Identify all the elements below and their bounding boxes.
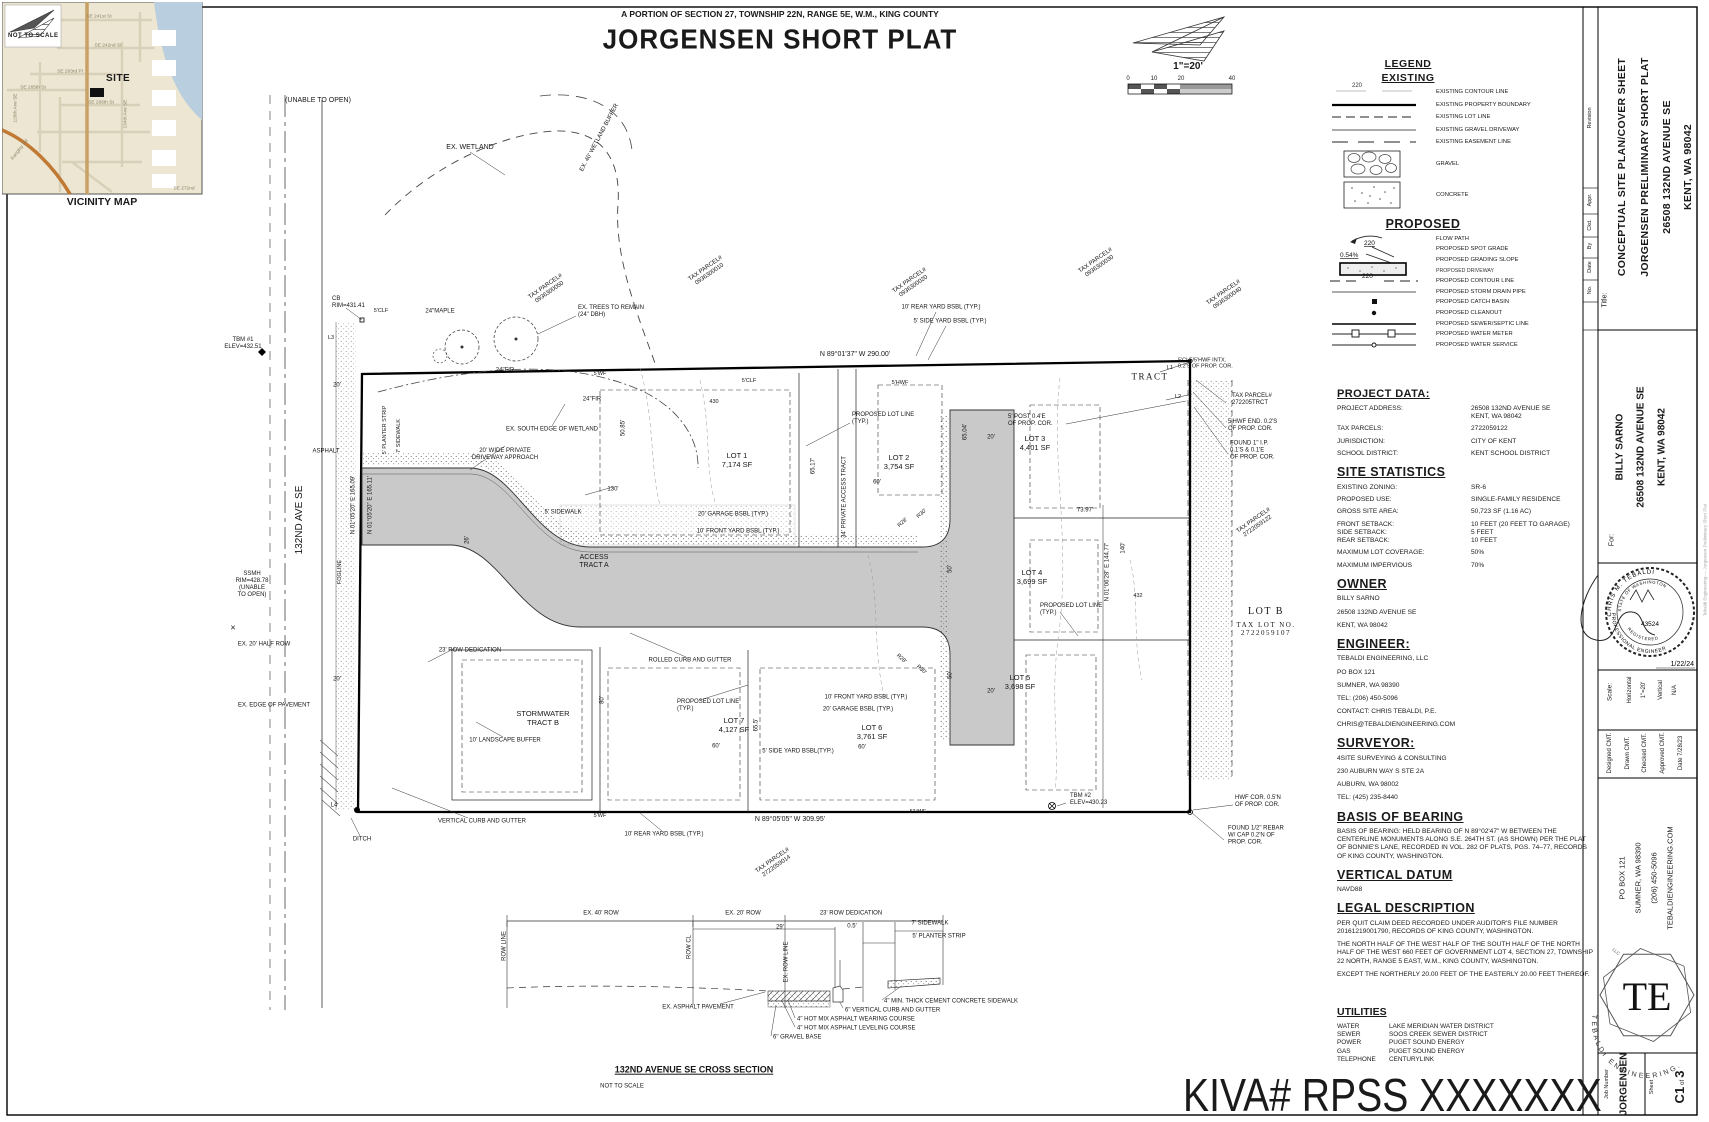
sheet-of: of [1680,1078,1686,1087]
vicinity-site-label: SITE [106,73,130,84]
plat-label: EX. 20' ROW [725,910,761,917]
panel-row: EXISTING ZONING:SR-6 [1337,484,1593,492]
panel-row-label: FRONT SETBACK: SIDE SETBACK: REAR SETBAC… [1337,521,1471,546]
scale-vertical-label: Vertical [1658,680,1664,700]
plat-label: 20' [333,676,341,683]
legend-row: CONCRETE [1318,180,1592,211]
legend-label: PROPOSED STORM DRAIN PIPE [1430,289,1526,295]
project-data-panel: PROJECT DATA:PROJECT ADDRESS:26508 132ND… [1337,381,1593,984]
plat-label: 5'CLF [374,308,389,314]
panel-row-label: GROSS SITE AREA: [1337,508,1471,516]
utility-value: PUGET SOUND ENERGY [1389,1048,1465,1056]
plat-label: 60' [712,743,720,750]
utility-label: POWER [1337,1039,1389,1047]
legend-label: FLOW PATH [1430,236,1469,242]
revision-column-label: Appr. [1587,194,1593,207]
scale-tick: 40 [1229,76,1236,82]
panel-row-label: PROPOSED USE: [1337,496,1471,504]
panel-row-value: 50% [1471,549,1593,557]
legend-label: CONCRETE [1430,192,1469,198]
panel-row-value: 10 FEET (20 FEET TO GARAGE) 5 FEET 10 FE… [1471,521,1593,546]
plat-label: 140' [1120,542,1127,553]
plat-label: EX. SOUTH EDGE OF WETLAND [506,426,598,433]
revision-column-label: Date [1587,261,1593,273]
svg-text:220: 220 [1352,83,1363,89]
plat-label: 24"FIR [496,367,514,374]
legend-label: PROPOSED CLEANOUT [1430,310,1502,316]
plat-label: 20' [987,434,995,441]
panel-row-label: MAXIMUM IMPERVIOUS [1337,562,1471,570]
vicinity-not-to-scale: NOT TO SCALE [8,33,59,39]
panel-row: SCHOOL DISTRICT:KENT SCHOOL DISTRICT [1337,450,1593,458]
legend-title: LEGEND [1342,58,1474,70]
plat-label: EX. ASPHALT PAVEMENT [662,1004,734,1011]
panel-row-label: MAXIMUM LOT COVERAGE: [1337,549,1471,557]
revision-column-label: No. [1587,286,1593,295]
plat-label: SSMH RIM=428.78 (UNABLE TO OPEN) [236,571,269,599]
plat-label: PROPOSED LOT LINE (TYP.) [677,699,739,713]
utility-label: WATER [1337,1023,1389,1031]
panel-row: MAXIMUM LOT COVERAGE:50% [1337,549,1593,557]
plat-label: N 01°05'20" E 165.11' [367,476,374,534]
vicinity-street-label: SE 241st St [86,15,111,20]
kiva-number: KIVA# RPSS XXXXXXX [1183,1068,1602,1122]
plat-label: 10' FRONT YARD BSBL (TYP.) [825,694,908,701]
panel-row-value: 2722059122 [1471,425,1593,433]
plat-label: 4" MIN. THICK CEMENT CONCRETE SIDEWALK [884,998,1018,1005]
plat-label: 23' ROW DEDICATION [439,647,501,654]
plat-label: HWF COR. 0.5'N OF PROP. COR. [1235,795,1281,809]
plat-label: 10' LANDSCAPE BUFFER [469,737,541,744]
legend-label: PROPOSED SEWER/SEPTIC LINE [1430,321,1529,327]
titleblock-for-line: KENT, WA 98042 [1657,408,1668,486]
legend-row: GRAVEL [1318,149,1592,180]
plat-label: CB RIM=431.41 [332,296,365,310]
titleblock-title-line: 26508 132ND AVENUE SE [1661,100,1673,234]
panel-text: TEBALDI ENGINEERING, LLC [1337,655,1593,663]
plat-label: EX. 40' ROW [583,910,619,917]
panel-row: JURISDICTION:CITY OF KENT [1337,438,1593,446]
utility-label: TELEPHONE [1337,1056,1389,1064]
utilities-title: UTILITIES [1337,1006,1587,1020]
plat-label: TBM #1 ELEV=432.51 [224,337,261,351]
plat-label: VERTICAL CURB AND GUTTER [438,818,526,825]
panel-section-title: OWNER [1337,577,1593,593]
legend-label: PROPOSED CONTOUR LINE [1430,278,1514,284]
scale-vertical-value: N/A [1672,685,1678,695]
firm-address-line: PO BOX 121 [1618,856,1627,899]
credit-checked: Checked CMT. [1642,733,1648,772]
plat-label: TBM #2 ELEV=430.23 [1070,793,1107,807]
plat-label: 5' PLANTER STRIP [382,406,388,455]
plat-label: L2 [1175,394,1181,400]
scale-tick: 10 [1151,76,1158,82]
svg-text:TE: TE [1623,974,1672,1019]
legend-label: PROPOSED GRADING SLOPE [1430,257,1518,263]
plat-label: FOUND 1/2" REBAR W/ CAP 0.2'N OF PROP. C… [1228,825,1284,846]
plat-label: LOT 1 7,174 SF [722,452,752,470]
vicinity-street-label: SE 266th St [88,101,114,106]
panel-row-value: SINGLE-FAMILY RESIDENCE [1471,496,1593,504]
vicinity-caption: VICINITY MAP [2,196,202,208]
titleblock-for-label: For: [1609,534,1616,546]
plat-label: 65.5' [753,719,760,732]
plat-label: LOT 3 4,401 SF [1020,435,1050,453]
plat-label: 4" HOT MIX ASPHALT WEARING COURSE [797,1016,915,1023]
plat-label: 65.17' [810,458,817,474]
plat-label: LOT 6 3,761 SF [857,724,887,742]
plat-label: 20' GARAGE BSBL (TYP.) [698,511,768,518]
plat-label: 132ND AVENUE SE CROSS SECTION [615,1065,774,1076]
panel-row: PROPOSED USE:SINGLE-FAMILY RESIDENCE [1337,496,1593,504]
plat-label: 26' [464,536,471,544]
sheet-value: C1 [1672,1087,1687,1104]
legend-row: EXISTING EASEMENT LINE [1318,136,1592,149]
legend-symbol-ws-icon [1318,331,1430,359]
plat-label: 5'HWF [910,809,927,815]
plat-label: 5'WF [594,813,607,819]
plat-label: 5' SIDE YARD BSBL(TYP.) [762,748,834,755]
plat-label: 10' REAR YARD BSBL (TYP.) [902,304,981,311]
plat-label: 20' WIDE PRIVATE DRIVEWAY APPROACH [472,448,538,462]
plat-label: (UNABLE TO OPEN) [285,97,351,105]
plat-label: 65.04' [962,424,969,440]
plat-label: 5'WF [594,371,607,377]
plat-label: 132ND AVE SE [294,486,306,555]
credit-designed: Designed CMT. [1607,732,1613,773]
plat-label: 34' PRIVATE ACCESS TRACT [841,456,848,538]
scale-horizontal-label: Horizontal [1627,676,1633,703]
utility-label: SEWER [1337,1031,1389,1039]
plat-label: L3 [328,335,334,341]
plat-label: LOT 7 4,127 SF [719,717,749,735]
job-number-label: Job Number [1604,1069,1610,1099]
plat-label: 5'CLF/5'HWF INTX. 0.2'S OF PROP. COR. [1178,358,1233,371]
plat-label: 7' SIDEWALK [396,419,402,453]
titleblock-title-label: Title: [1602,293,1609,308]
plat-label: 50.85' [620,420,627,436]
plat-label: 5' SIDE YARD BSBL (TYP.) [914,318,987,325]
plat-label: 20' [987,688,995,695]
scale-tick: 0 [1126,76,1129,82]
plat-label: LOT 5 3,698 SF [1005,674,1035,692]
panel-row: PROJECT ADDRESS:26508 132ND AVENUE SE KE… [1337,405,1593,421]
utility-label: GAS [1337,1048,1389,1056]
panel-text: TEL: (206) 450-5096 [1337,695,1593,703]
panel-text: CONTACT: CHRIS TEBALDI, P.E. [1337,708,1593,716]
vicinity-street-label: 134th Ave SE [124,100,129,129]
panel-row-value: KENT SCHOOL DISTRICT [1471,450,1593,458]
firm-address-line: SUMNER, WA 98390 [1634,843,1643,914]
panel-text: AUBURN, WA 98002 [1337,781,1593,789]
panel-text: 4SITE SURVEYING & CONSULTING [1337,755,1593,763]
legend: LEGEND EXISTING 220EXISTING CONTOUR LINE… [1318,58,1592,350]
plat-label: 10' REAR YARD BSBL (TYP.) [625,831,704,838]
plat-label: ASPHALT [313,448,340,455]
firm-address-line: TEBALDIENGINEERING.COM [1666,826,1675,929]
panel-text: EXCEPT THE NORTHERLY 20.00 FEET OF THE E… [1337,971,1593,979]
panel-row-value: CITY OF KENT [1471,438,1593,446]
plat-label: ROLLED CURB AND GUTTER [648,657,731,664]
panel-text: BILLY SARNO [1337,595,1593,603]
plat-label: 80' [599,696,606,704]
firm-address-line: (206) 450-5096 [1650,852,1659,903]
panel-row: FRONT SETBACK: SIDE SETBACK: REAR SETBAC… [1337,521,1593,546]
plat-label: 5'CLF [742,378,757,384]
utility-value: CENTURYLINK [1389,1056,1434,1064]
panel-section-title: ENGINEER: [1337,637,1593,653]
titleblock-title-line: KENT, WA 98042 [1682,124,1694,210]
panel-row-value: SR-6 [1471,484,1593,492]
scale-label: 1"=20' [1148,61,1228,72]
panel-text: TEL: (425) 235-8440 [1337,794,1593,802]
titleblock-for-line: BILLY SARNO [1615,414,1626,481]
panel-text: CHRIS@TEBALDIENGINEERING.COM [1337,721,1593,729]
plat-label: ACCESS TRACT A [579,554,608,571]
plat-label: 5'HWF [892,380,909,386]
plat-label: EX. WETLAND [446,144,493,152]
vicinity-street-label: SE 265th St [20,86,46,91]
scale-bar [1128,84,1232,94]
vicinity-map: NOT TO SCALE SITE VICINITY MAP SE 241st … [2,2,210,220]
panel-row-value: 70% [1471,562,1593,570]
plat-label: TAX LOT NO. 2722059107 [1236,621,1295,638]
legend-label: EXISTING LOT LINE [1430,114,1490,120]
plat-label: TAX PARCEL# 272205TRCT [1232,393,1272,407]
titleblock-title-line: JORGENSEN PRELIMINARY SHORT PLAT [1639,57,1651,276]
panel-row-label: JURISDICTION: [1337,438,1471,446]
panel-row-label: TAX PARCELS: [1337,425,1471,433]
plat-label: PROPOSED LOT LINE (TYP.) [1040,603,1102,617]
revision-column-label: By [1587,243,1593,249]
panel-row-label: SCHOOL DISTRICT: [1337,450,1471,458]
plat-label: 20' GARAGE BSBL (TYP.) [823,706,893,713]
panel-text: SUMNER, WA 98390 [1337,682,1593,690]
plat-label: LOT 4 3,699 SF [1017,569,1047,587]
utility-row: SEWERSOOS CREEK SEWER DISTRICT [1337,1031,1587,1039]
legend-label: PROPOSED CATCH BASIN [1430,299,1509,305]
sheet-title: JORGENSEN SHORT PLAT [520,23,1040,56]
plat-label: N 89°01'37" W 290.00' [820,351,890,359]
panel-row-label: EXISTING ZONING: [1337,484,1471,492]
plat-label: 50' [947,565,954,573]
legend-label: PROPOSED WATER METER [1430,331,1513,337]
svg-text:1/22/24: 1/22/24 [1671,661,1694,668]
legend-label: PROPOSED SPOT GRADE [1430,246,1508,252]
plat-label: 5' POST 0.4'E OF PROP. COR. [1008,414,1053,428]
utility-row: TELEPHONECENTURYLINK [1337,1056,1587,1064]
legend-symbol-concrete-icon [1318,181,1430,209]
utilities-panel: UTILITIES WATERLAKE MERIDIAN WATER DISTR… [1337,1006,1587,1064]
plat-label: ROW CL [686,935,693,959]
plat-label: 29' [776,924,784,931]
utility-value: SOOS CREEK SEWER DISTRICT [1389,1031,1488,1039]
panel-section-title: PROJECT DATA: [1337,388,1593,402]
plat-label: EX. 20' HALF ROW [238,641,291,648]
plat-label: EX. EDGE OF PAVEMENT [238,702,310,709]
panel-text: 26508 132ND AVENUE SE [1337,609,1593,617]
panel-text: NAVD88 [1337,886,1593,894]
plat-label: 20' [333,382,341,389]
plat-label: LOT B [1248,606,1284,618]
titleblock-for-line: 26508 132ND AVENUE SE [1636,386,1647,507]
plat-label: 6" GRAVEL BASE [773,1034,821,1041]
vicinity-street-label: SE 242nd St [95,44,122,49]
scale-tick: 20 [1178,76,1185,82]
panel-section-title: VERTICAL DATUM [1337,868,1593,884]
panel-row: MAXIMUM IMPERVIOUS70% [1337,562,1593,570]
legend-label: PROPOSED WATER SERVICE [1430,342,1518,348]
legend-label: PROPOSED DRIVEWAY [1430,268,1494,274]
plat-label: N 01°05'20" E 165.09' [350,476,357,535]
revision-column-label: Revision [1587,107,1593,128]
site-marker [90,88,104,97]
panel-text: KENT, WA 98042 [1337,622,1593,630]
legend-label: EXISTING EASEMENT LINE [1430,139,1511,145]
vicinity-street-label: SE 263rd Pl [57,70,83,75]
plat-label: LOT 2 3,754 SF [884,454,914,472]
sheet-total: 3 [1672,1071,1687,1078]
panel-section-title: SITE STATISTICS [1337,465,1593,481]
plat-label: L1 [1167,365,1173,371]
plat-label: 24"MAPLE [425,308,454,315]
panel-row-label: PROJECT ADDRESS: [1337,405,1471,421]
credit-drawn: Drawn CMT. [1625,736,1631,769]
legend-label: EXISTING PROPERTY BOUNDARY [1430,102,1531,108]
titleblock-title-line: CONCEPTUAL SITE PLAN/COVER SHEET [1616,58,1628,276]
plat-label: ROW LINE [501,931,508,961]
plat-label: 5' PLANTER STRIP [912,933,965,940]
plat-label: 23' ROW DEDICATION [820,910,882,917]
plat-label: PROPOSED LOT LINE (TYP.) [852,412,914,426]
plat-label: DITCH [353,836,371,843]
plat-label: 50' [947,671,954,679]
plan-sheet: CHRIS M. TEBALDI STATE OF WASHINGTON PRO… [0,0,1709,1122]
panel-text: BASIS OF BEARING: HELD BEARING OF N 89°0… [1337,828,1593,861]
plat-label: 7' SIDEWALK [912,920,949,927]
plot-stamp-note: Tebaldi Engineering — Jorgensen Prelimin… [1703,504,1708,616]
plat-label: 432 [1133,593,1142,599]
plat-label: 430 [709,399,718,405]
panel-row-value: 26508 132ND AVENUE SE KENT, WA 98042 [1471,405,1593,421]
plat-label: NOT TO SCALE [600,1083,644,1090]
plat-label: EX. TREES TO REMAIN (24" DBH) [578,305,644,319]
plat-label: 10' FRONT YARD BSBL (TYP.) [697,528,780,535]
panel-text: 230 AUBURN WAY S STE 2A [1337,768,1593,776]
vicinity-street-label: SE 272nd [173,187,194,192]
legend-row: PROPOSED WATER SERVICE [1318,339,1592,350]
plat-label: 5'HWF END. 0.2'S OF PROP. COR. [1228,419,1277,433]
credit-approved: Approved CMT. [1660,732,1666,773]
plat-label: STORMWATER TRACT B [516,710,569,728]
plat-label: 0.5' [847,923,857,930]
plat-label: 24"FIR [583,396,601,403]
plat-label: FOGLINE [337,560,343,584]
revision-column-label: Ckd. [1587,219,1593,230]
utility-row: WATERLAKE MERIDIAN WATER DISTRICT [1337,1023,1587,1031]
plat-label: 60' [873,479,881,486]
legend-label: GRAVEL [1430,161,1459,167]
plat-label: 5' SIDEWALK [545,509,582,516]
panel-text: PER QUIT CLAIM DEED RECORDED UNDER AUDIT… [1337,920,1593,936]
plat-label: 4" HOT MIX ASPHALT LEVELING COURSE [797,1025,916,1032]
plat-label: TRACT [1131,372,1168,383]
plat-label: FOUND 1" I.P. 0.1'S & 0.1'E OF PROP. COR… [1230,440,1275,461]
panel-section-title: SURVEYOR: [1337,736,1593,752]
panel-section-title: LEGAL DESCRIPTION [1337,901,1593,917]
plat-label: 130' [607,486,618,493]
utility-value: PUGET SOUND ENERGY [1389,1039,1465,1047]
sheet-number: C1of3 [1671,1071,1689,1104]
panel-section-title: BASIS OF BEARING [1337,810,1593,826]
plat-label: 6" VERTICAL CURB AND GUTTER [845,1007,940,1014]
utility-row: POWERPUGET SOUND ENERGY [1337,1039,1587,1047]
credit-date: Date 7/28/23 [1678,736,1684,770]
plat-label: N 89°05'05" W 309.95' [755,816,825,824]
legend-symbol-gravel-icon [1318,150,1430,178]
panel-text: PO BOX 121 [1337,669,1593,677]
sheet-subtitle: A PORTION OF SECTION 27, TOWNSHIP 22N, R… [520,9,1040,19]
plat-label: EX. ROW LINE [783,941,790,982]
plat-label: N 01°06'28" E 144.77' [1104,543,1111,602]
panel-row-value: 50,723 SF (1.16 AC) [1471,508,1593,516]
legend-label: EXISTING GRAVEL DRIVEWAY [1430,127,1519,133]
utility-value: LAKE MERIDIAN WATER DISTRICT [1389,1023,1494,1031]
scale-section-label: Scale: [1607,683,1614,701]
panel-row: TAX PARCELS:2722059122 [1337,425,1593,433]
legend-label: EXISTING CONTOUR LINE [1430,89,1508,95]
plat-label: 73.97' [1077,507,1093,514]
panel-row: GROSS SITE AREA:50,723 SF (1.16 AC) [1337,508,1593,516]
plat-label: 60' [858,744,866,751]
plat-label: × [230,623,235,634]
scale-horizontal-value: 1"=20' [1641,682,1647,699]
utility-row: GASPUGET SOUND ENERGY [1337,1048,1587,1056]
sheet-label: Sheet [1649,1080,1655,1094]
job-number-value: JORGENSEN [1619,1053,1630,1116]
panel-text: THE NORTH HALF OF THE WEST HALF OF THE S… [1337,941,1593,966]
vicinity-street-label: 128th Ave SE [14,94,19,123]
plat-label: L4 [331,802,338,809]
